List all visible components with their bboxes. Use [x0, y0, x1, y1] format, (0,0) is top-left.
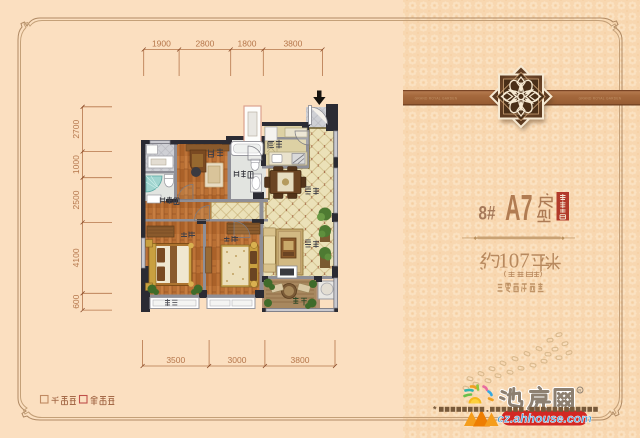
- svg-text:cz.ahhouse.com: cz.ahhouse.com: [497, 412, 592, 426]
- svg-text:107: 107: [498, 249, 530, 273]
- svg-text:2800: 2800: [195, 39, 214, 49]
- svg-text:1000: 1000: [71, 155, 81, 174]
- svg-text:3500: 3500: [166, 355, 185, 365]
- svg-text:*: *: [433, 405, 437, 415]
- svg-text:4100: 4100: [71, 248, 81, 267]
- svg-text:R: R: [578, 388, 581, 393]
- svg-text:GRAND ROYAL GARDEN: GRAND ROYAL GARDEN: [415, 97, 458, 101]
- svg-text:1900: 1900: [152, 39, 171, 49]
- svg-text:8#: 8#: [479, 202, 496, 224]
- svg-text:600: 600: [71, 294, 81, 308]
- svg-text:3800: 3800: [283, 39, 302, 49]
- svg-text:2500: 2500: [71, 190, 81, 209]
- svg-text:A7: A7: [505, 188, 533, 228]
- svg-text:1800: 1800: [238, 39, 257, 49]
- svg-text:2700: 2700: [71, 119, 81, 138]
- svg-text:3800: 3800: [291, 355, 310, 365]
- svg-text:GRAND ROYAL GARDEN: GRAND ROYAL GARDEN: [579, 97, 622, 101]
- svg-text:3000: 3000: [228, 355, 247, 365]
